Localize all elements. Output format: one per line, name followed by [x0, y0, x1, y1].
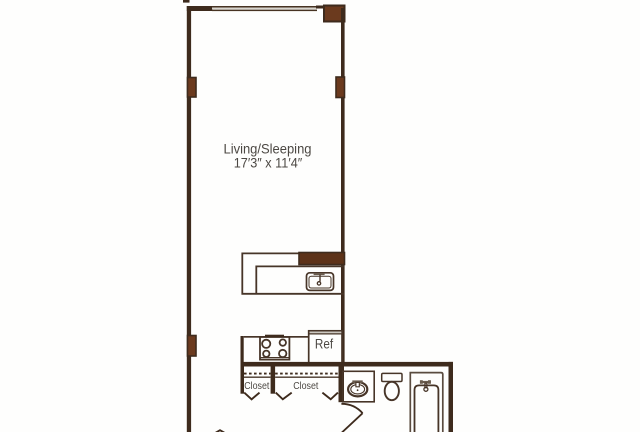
svg-text:Closet: Closet [244, 381, 269, 392]
svg-text:Closet: Closet [293, 381, 318, 392]
svg-text:17′3″ x 11′4″: 17′3″ x 11′4″ [234, 155, 303, 170]
svg-text:Ref: Ref [315, 335, 333, 351]
svg-text:Living/Sleeping: Living/Sleeping [224, 141, 312, 157]
